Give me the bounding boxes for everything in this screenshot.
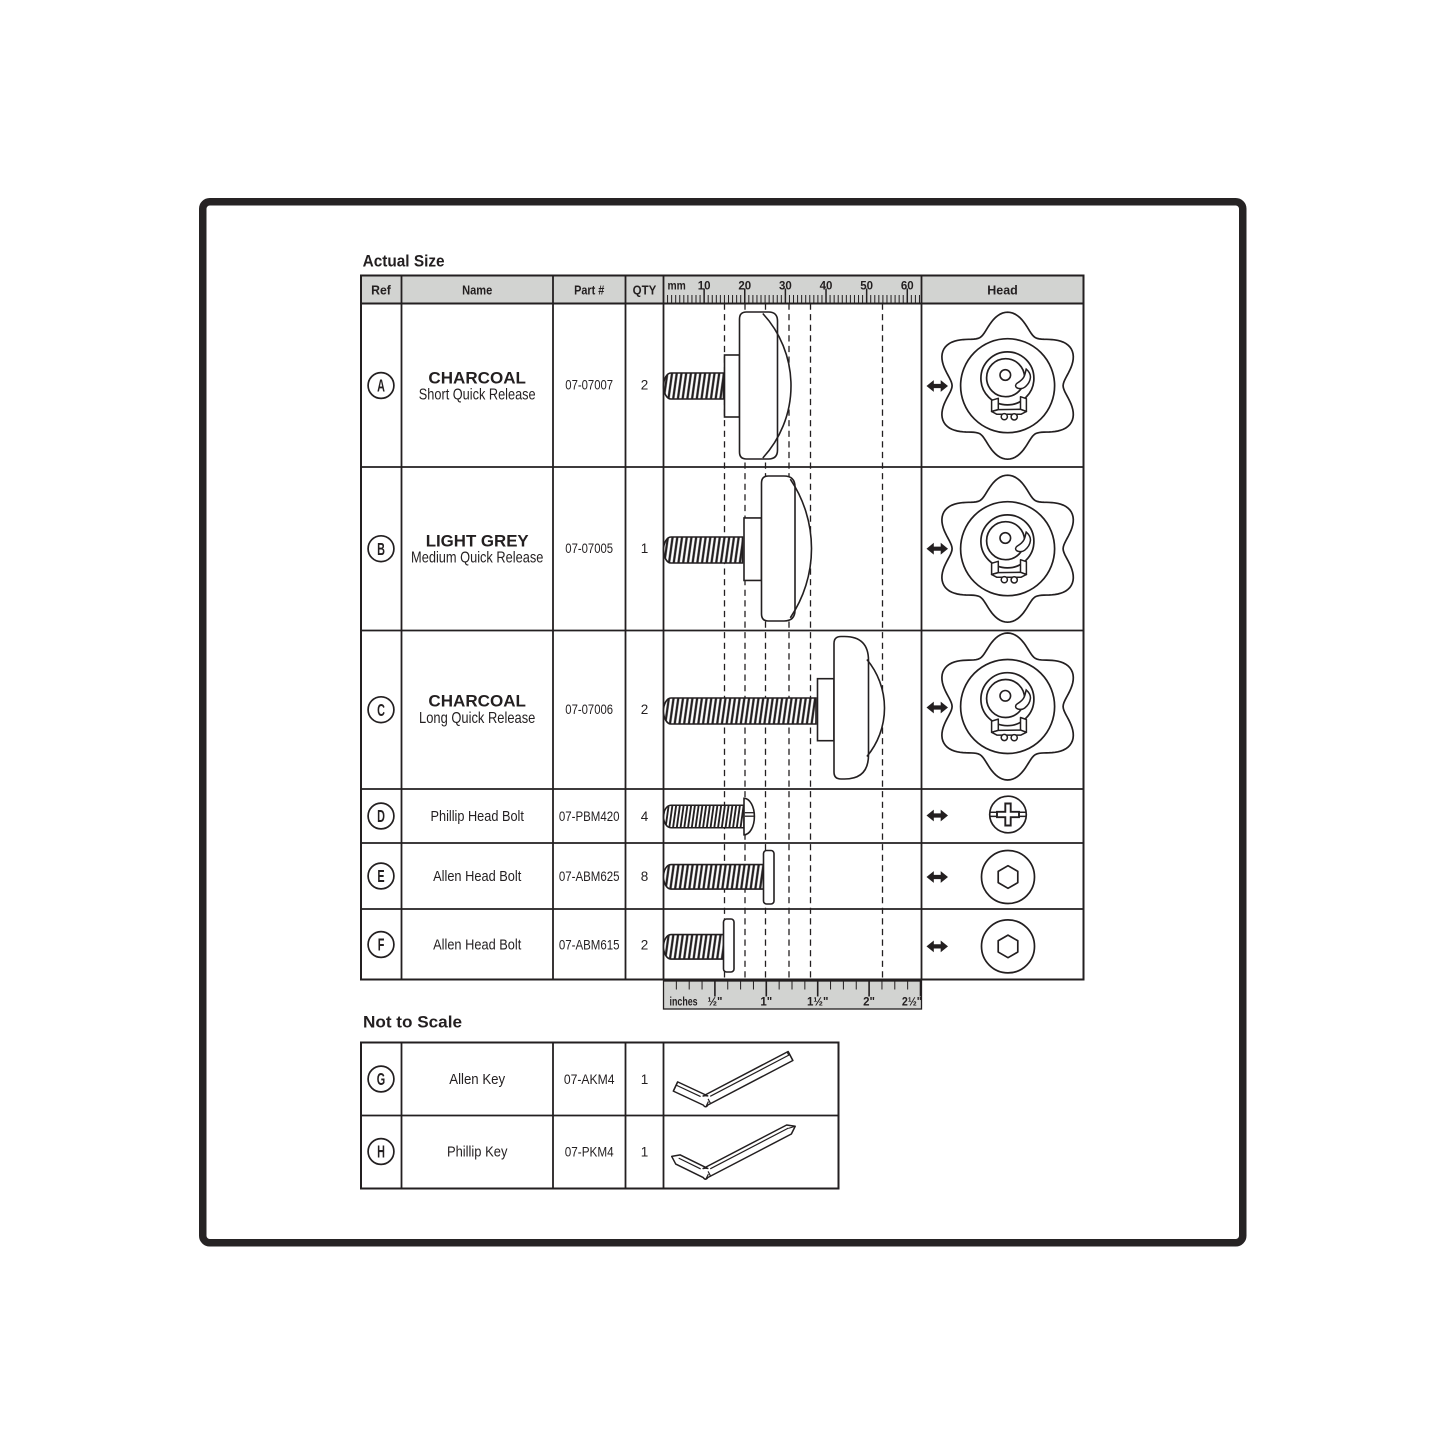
svg-text:1": 1" xyxy=(760,997,772,1009)
svg-text:G: G xyxy=(377,1071,385,1090)
svg-text:1: 1 xyxy=(641,1072,649,1087)
svg-text:½": ½" xyxy=(707,997,722,1009)
svg-text:07-PKM4: 07-PKM4 xyxy=(565,1145,614,1160)
svg-text:Medium Quick Release: Medium Quick Release xyxy=(411,550,543,567)
svg-text:Name: Name xyxy=(462,282,492,297)
svg-text:07-07007: 07-07007 xyxy=(565,378,613,393)
svg-text:mm: mm xyxy=(668,281,686,293)
svg-text:1: 1 xyxy=(641,1145,649,1160)
svg-text:Actual Size: Actual Size xyxy=(363,252,445,270)
svg-text:07-ABM625: 07-ABM625 xyxy=(559,869,620,884)
svg-text:2: 2 xyxy=(641,937,649,952)
svg-text:A: A xyxy=(377,377,385,396)
svg-text:Allen Head Bolt: Allen Head Bolt xyxy=(433,937,521,953)
svg-text:20: 20 xyxy=(738,281,751,293)
svg-text:1: 1 xyxy=(641,541,649,556)
svg-text:8: 8 xyxy=(641,869,649,884)
svg-text:2": 2" xyxy=(863,997,875,1009)
svg-text:07-PBM420: 07-PBM420 xyxy=(559,809,620,824)
svg-text:2½": 2½" xyxy=(902,997,922,1009)
svg-text:CHARCOAL: CHARCOAL xyxy=(428,692,526,711)
svg-text:Phillip Head Bolt: Phillip Head Bolt xyxy=(431,809,524,825)
svg-text:Allen Head Bolt: Allen Head Bolt xyxy=(433,869,521,885)
svg-text:30: 30 xyxy=(779,281,792,293)
svg-text:Part #: Part # xyxy=(574,282,605,297)
svg-text:Allen Key: Allen Key xyxy=(449,1072,506,1088)
svg-text:CHARCOAL: CHARCOAL xyxy=(428,368,526,387)
svg-text:Long Quick Release: Long Quick Release xyxy=(419,710,535,727)
svg-text:Short Quick Release: Short Quick Release xyxy=(419,387,536,404)
svg-text:H: H xyxy=(377,1143,385,1162)
svg-text:2: 2 xyxy=(641,378,649,393)
svg-text:D: D xyxy=(377,808,385,827)
svg-text:07-AKM4: 07-AKM4 xyxy=(564,1072,615,1087)
svg-text:Phillip Key: Phillip Key xyxy=(447,1145,508,1161)
svg-text:1½": 1½" xyxy=(807,997,828,1009)
svg-text:B: B xyxy=(377,540,385,559)
svg-text:07-07005: 07-07005 xyxy=(565,541,613,556)
svg-text:Head: Head xyxy=(987,282,1018,297)
svg-text:Not to Scale: Not to Scale xyxy=(363,1013,462,1032)
svg-text:50: 50 xyxy=(860,281,873,293)
svg-text:E: E xyxy=(377,868,384,887)
svg-text:60: 60 xyxy=(901,281,914,293)
svg-text:C: C xyxy=(377,701,385,720)
svg-text:40: 40 xyxy=(820,281,833,293)
svg-text:F: F xyxy=(378,936,385,955)
svg-text:4: 4 xyxy=(641,809,649,824)
svg-text:07-ABM615: 07-ABM615 xyxy=(559,937,620,952)
svg-text:07-07006: 07-07006 xyxy=(565,702,613,717)
svg-text:inches: inches xyxy=(670,997,698,1009)
svg-text:Ref: Ref xyxy=(371,282,391,297)
svg-text:QTY: QTY xyxy=(633,282,657,297)
svg-text:LIGHT GREY: LIGHT GREY xyxy=(426,532,530,551)
svg-text:10: 10 xyxy=(698,281,711,293)
svg-text:2: 2 xyxy=(641,702,649,717)
